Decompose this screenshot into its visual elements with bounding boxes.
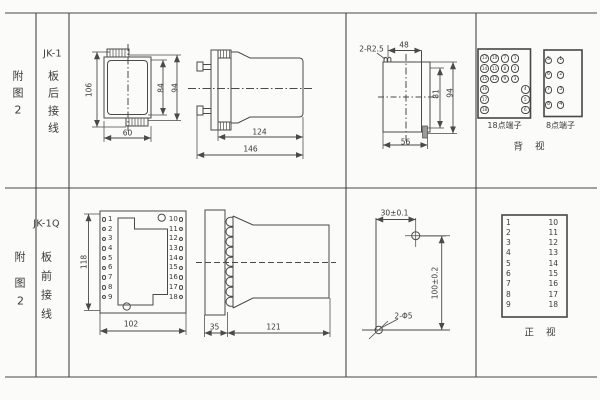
dim-outer-94b: 94 [446, 88, 454, 98]
wiring-type-char: 线 [48, 122, 59, 133]
terminal-point-circled-number: 18 [480, 106, 489, 115]
model-name: JK-1 [43, 49, 62, 59]
plate-terminal: 15 [158, 263, 183, 272]
terminal-circle-icon [179, 246, 183, 250]
terminal-point-circled-number: 14 [480, 64, 489, 73]
plate-terminal: 12 [158, 234, 183, 243]
dim-height-106: 106 [85, 82, 93, 96]
dim-drill-holes: 2-Φ5 [394, 312, 412, 320]
table-terminal-number: 16 [541, 280, 558, 289]
figure-label-char: 图 [15, 278, 26, 289]
plate-terminal: 7 [102, 273, 112, 282]
terminal-point-circled-number: 7 [545, 86, 552, 93]
rear-view-label: 背 视 [513, 142, 545, 152]
dim-drill-horizontal: 30±0.1 [381, 209, 409, 217]
table-terminal-number: 3 [506, 238, 511, 247]
terminal-point-circled-number: 13 [480, 54, 489, 63]
plate-terminal: 5 [102, 254, 112, 263]
table-terminal-number: 2 [506, 228, 511, 237]
dim-total-146: 146 [243, 145, 257, 153]
terminal-point-circled-number: 16 [480, 85, 489, 94]
plate-terminal: 6 [102, 263, 112, 272]
table-terminal-number: 15 [541, 269, 558, 278]
terminal-point-circled-number: 10 [490, 54, 499, 63]
terminal-point-circled-number: 6 [521, 106, 530, 115]
wiring-type-char: 板 [41, 252, 52, 263]
terminal-8-label: 8点端子 [546, 122, 575, 130]
wiring-type-char: 后 [48, 87, 59, 98]
terminal-point-circled-number: 5 [521, 95, 530, 104]
terminal-circle-icon [179, 285, 183, 289]
terminal-circle-icon [102, 217, 106, 221]
table-terminal-number: 10 [541, 218, 558, 227]
table-terminal-number: 6 [506, 269, 511, 278]
terminal-point-circled-number: 15 [480, 75, 489, 84]
plate-terminal: 13 [158, 244, 183, 253]
dim-corner-radius: 2-R2.5 [359, 45, 384, 53]
plate-terminal: 1 [102, 215, 112, 224]
plate-terminal: 4 [102, 244, 112, 253]
figure-label-char: 2 [17, 295, 24, 306]
terminal-circle-icon [179, 275, 183, 279]
dim-width-60: 60 [123, 129, 133, 137]
terminal-circle-icon [179, 227, 183, 231]
plate-terminal: 11 [158, 224, 183, 233]
terminal-circle-icon [102, 275, 106, 279]
plate-terminal: 16 [158, 273, 183, 282]
table-terminal-number: 5 [506, 259, 511, 268]
terminal-point-circled-number: 1 [511, 54, 520, 63]
terminal-circle-icon [102, 295, 106, 299]
table-terminal-number: 12 [541, 238, 558, 247]
terminal-circle-icon [179, 237, 183, 241]
terminal-point-circled-number: 4 [521, 85, 530, 94]
dim-top-48: 48 [399, 41, 409, 49]
terminal-circle-icon [179, 295, 183, 299]
dim-plate-102: 102 [124, 320, 138, 328]
terminal-circle-icon [179, 266, 183, 270]
terminal-circle-icon [102, 237, 106, 241]
figure-label-char: 附 [13, 71, 24, 82]
terminal-point-circled-number: 6 [545, 71, 552, 78]
table-terminal-number: 1 [506, 218, 511, 227]
figure-label-char: 附 [15, 252, 26, 263]
table-terminal-number: 17 [541, 290, 558, 299]
dim-body-124: 124 [252, 128, 266, 136]
terminal-circle-icon [102, 227, 106, 231]
dim-depth-35: 35 [210, 323, 220, 331]
table-terminal-number: 7 [506, 280, 511, 289]
model-name: JK-1Q [33, 219, 59, 229]
dim-drill-vertical: 100±0.2 [431, 267, 439, 300]
wiring-type-char: 板 [48, 71, 59, 82]
plate-terminal: 2 [102, 224, 112, 233]
terminal-circle-icon [102, 246, 106, 250]
dim-bottom-56: 56 [401, 138, 411, 146]
terminal-circle-icon [179, 256, 183, 260]
terminal-circle-icon [102, 256, 106, 260]
wiring-type-char: 前 [41, 271, 52, 282]
plate-terminal: 9 [102, 292, 112, 301]
dim-inner-84: 84 [157, 83, 165, 93]
drawing-linework [0, 0, 600, 400]
table-terminal-number: 8 [506, 290, 511, 299]
terminal-circle-icon [179, 217, 183, 221]
wiring-type-char: 接 [41, 290, 52, 301]
terminal-18-label: 18点端子 [487, 122, 521, 130]
table-terminal-number: 9 [506, 300, 511, 309]
wiring-type-char: 线 [41, 308, 52, 319]
table-terminal-number: 14 [541, 259, 558, 268]
technical-drawing-sheet: 附 图 2 JK-1 板 后 接 线 106 84 94 60 124 146 … [0, 0, 600, 400]
terminal-point-circled-number: 7 [501, 54, 510, 63]
dim-body-121: 121 [266, 323, 280, 331]
plate-terminal: 8 [102, 283, 112, 292]
figure-label-char: 图 [13, 87, 24, 98]
figure-label-char: 2 [15, 105, 22, 116]
plate-terminal: 18 [158, 292, 183, 301]
dim-inner-81: 81 [432, 89, 440, 99]
plate-terminal: 10 [158, 215, 183, 224]
wiring-type-char: 接 [48, 106, 59, 117]
table-terminal-number: 13 [541, 249, 558, 258]
front-view-label: 正 视 [524, 328, 556, 338]
plate-terminal: 14 [158, 254, 183, 263]
plate-terminal: 3 [102, 234, 112, 243]
terminal-point-circled-number: 8 [545, 101, 552, 108]
table-terminal-number: 18 [541, 300, 558, 309]
dim-outer-94: 94 [171, 83, 179, 93]
terminal-circle-icon [102, 266, 106, 270]
jk1q-side-view-drawing [196, 210, 336, 337]
table-terminal-number: 4 [506, 249, 511, 258]
plate-terminal: 17 [158, 283, 183, 292]
terminal-point-circled-number: 17 [480, 95, 489, 104]
terminal-point-circled-number: 11 [490, 64, 499, 73]
table-terminal-number: 11 [541, 228, 558, 237]
jk1-side-view-drawing [188, 50, 312, 159]
terminal-circle-icon [102, 285, 106, 289]
dim-plate-118: 118 [80, 255, 88, 269]
jk1-front-outline-drawing [92, 44, 181, 142]
